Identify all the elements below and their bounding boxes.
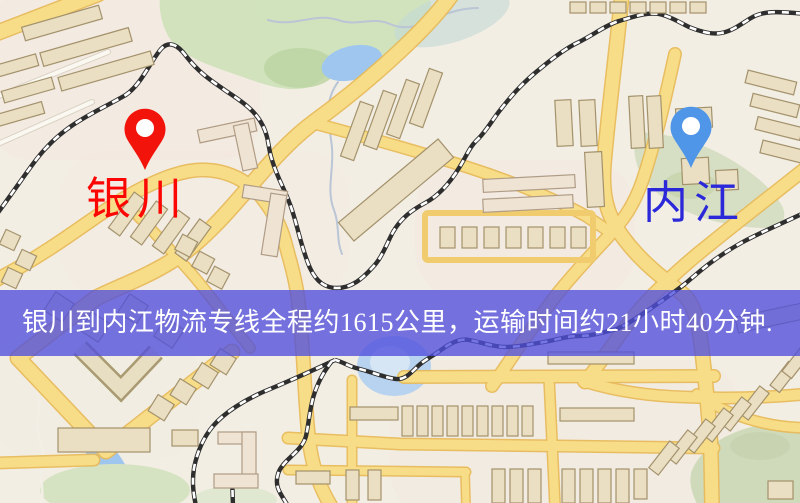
logistics-route-map: 银川 内江 银川到内江物流专线全程约1615公里，运输时间约21小时40分钟. [0, 0, 800, 503]
street-map-canvas [0, 0, 800, 503]
route-info-banner: 银川到内江物流专线全程约1615公里，运输时间约21小时40分钟. [0, 290, 800, 356]
route-info-text: 银川到内江物流专线全程约1615公里，运输时间约21小时40分钟. [0, 310, 773, 336]
destination-city-label: 内江 [643, 181, 745, 226]
origin-city-label: 银川 [86, 177, 188, 222]
